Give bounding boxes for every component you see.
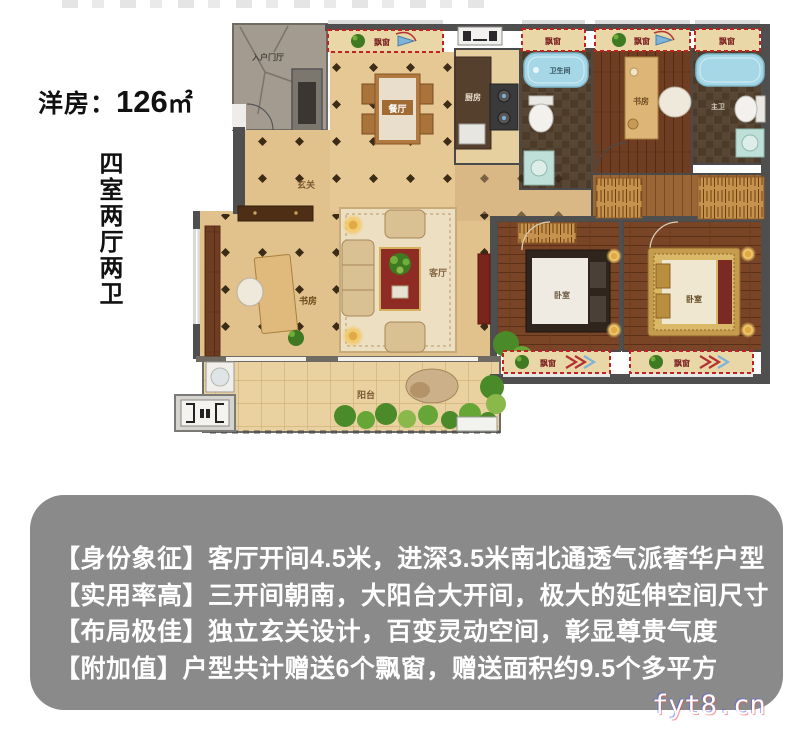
plant-icon	[612, 33, 626, 47]
bay-window-bath-master: 飘窗	[695, 29, 760, 51]
feature-line-identity: 【身份象征】客厅开间4.5米，进深3.5米南北通透气派奢华户型	[55, 541, 765, 578]
watermark: fyt8.cn	[652, 690, 766, 721]
dining-label: 餐厅	[387, 103, 406, 114]
cropped-text-remnant	[62, 0, 492, 8]
study-left-label: 书房	[299, 295, 317, 306]
feature-line-layout: 【布局极佳】独立玄关设计，百变灵动空间，彰显尊贵气度	[55, 614, 765, 651]
feature-line-efficiency: 【实用率高】三开间朝南，大阳台大开间，极大的延伸空间尺寸	[55, 578, 765, 615]
bay-window-label: 飘窗	[719, 36, 735, 46]
bay-window-bath-main: 飘窗	[522, 29, 585, 51]
entry-door-icon	[458, 27, 502, 45]
plant-icon	[351, 34, 365, 48]
kitchen-label: 厨房	[465, 92, 481, 102]
title-prefix: 洋房：	[38, 90, 116, 118]
foyer-label: 玄关	[297, 179, 315, 190]
bath-main-label: 卫生间	[550, 66, 571, 75]
bay-window-bedroom1: 飘窗	[503, 351, 610, 373]
bay-window-label: 飘窗	[545, 36, 561, 46]
bay-window-bedroom2: 飘窗	[630, 351, 753, 373]
bay-window-label: 飘窗	[634, 36, 650, 46]
floorplan: 入户门厅	[170, 12, 772, 444]
plant-icon	[515, 355, 529, 369]
living-label: 客厅	[428, 267, 447, 278]
feature-panel: 【身份象征】客厅开间4.5米，进深3.5米南北通透气派奢华户型 【实用率高】三开…	[30, 495, 783, 710]
stone-entry-area: 入户门厅	[232, 24, 327, 132]
bedroom2-label: 卧室	[686, 294, 702, 304]
bay-window-label: 飘窗	[540, 358, 556, 368]
title-area-value: 126	[116, 84, 168, 119]
study-top-label: 书房	[633, 96, 649, 106]
bath-master-label: 主卫	[711, 102, 725, 111]
bay-window-study: 飘窗	[595, 29, 690, 51]
entry-hall-label: 入户门厅	[251, 52, 284, 62]
bedroom1-label: 卧室	[554, 290, 570, 300]
elevator-icon	[175, 395, 235, 431]
balcony-label: 阳台	[357, 389, 375, 400]
feature-line-bonus: 【附加值】户型共计赠送6个飘窗，赠送面积约9.5个多平方	[55, 651, 765, 688]
layout-type-vertical-label: 四室两厅两卫	[91, 151, 126, 307]
bay-window-label: 飘窗	[374, 37, 390, 47]
plant-icon	[649, 355, 663, 369]
bay-window-dining: 飘窗	[328, 30, 443, 52]
bay-window-label: 飘窗	[674, 358, 690, 368]
